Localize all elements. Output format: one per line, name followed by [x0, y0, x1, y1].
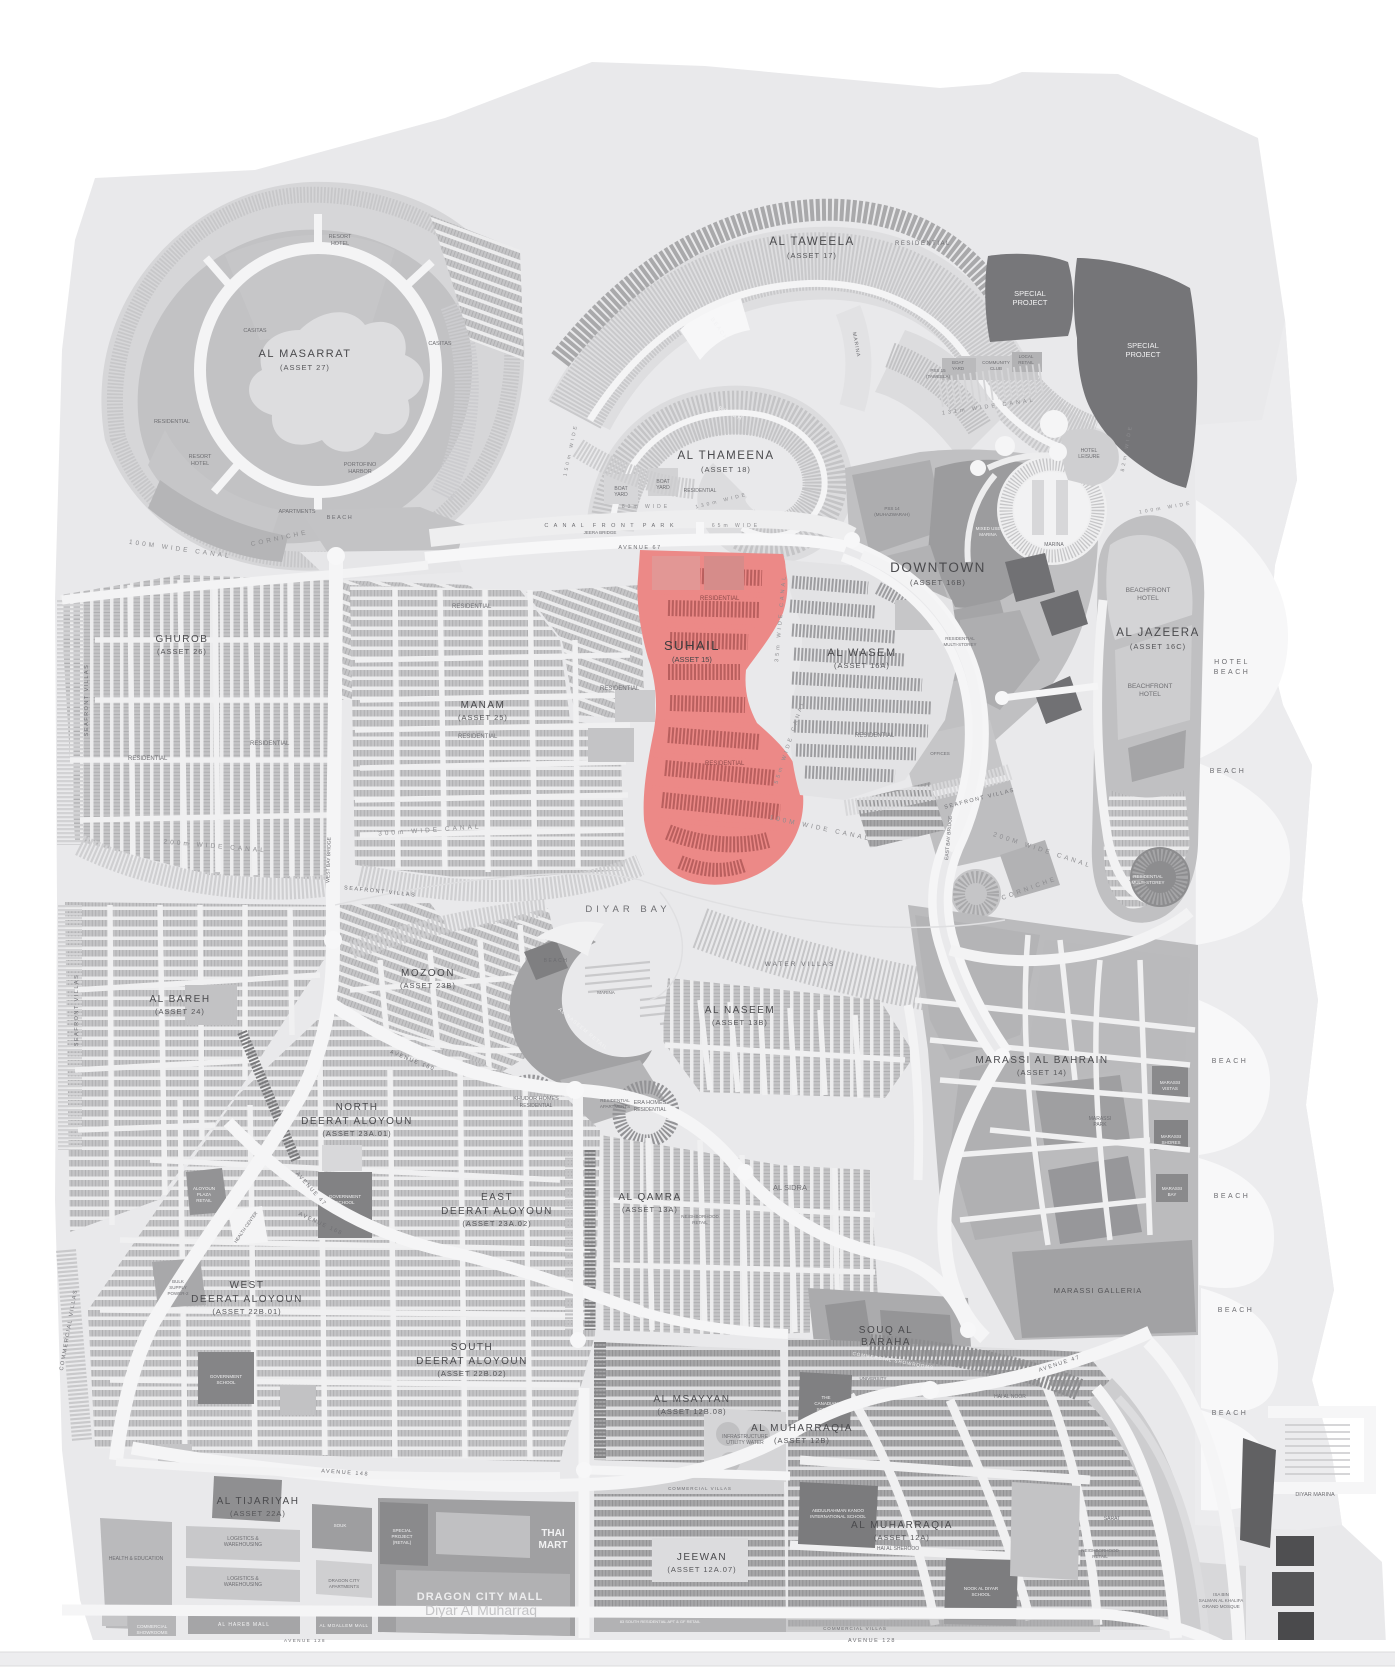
svg-text:GHUROB: GHUROB — [156, 634, 209, 645]
svg-text:PARK: PARK — [1093, 1122, 1107, 1128]
svg-text:(TAWEELA): (TAWEELA) — [926, 374, 951, 379]
svg-text:(ASSET 22A): (ASSET 22A) — [230, 1509, 286, 1518]
svg-text:RESORT: RESORT — [329, 234, 352, 240]
svg-text:AL MUHARRAQIA: AL MUHARRAQIA — [751, 1423, 853, 1434]
svg-text:(ASSET 22B.02): (ASSET 22B.02) — [437, 1369, 506, 1378]
svg-text:BOAT: BOAT — [952, 360, 964, 365]
svg-text:(ASSET 17): (ASSET 17) — [787, 251, 837, 260]
svg-text:SPECIAL: SPECIAL — [1127, 341, 1159, 350]
svg-text:YARD: YARD — [656, 485, 670, 491]
svg-text:MARASSI: MARASSI — [1160, 1080, 1180, 1085]
svg-text:RESIDENTIAL: RESIDENTIAL — [520, 1103, 553, 1109]
svg-text:RESIDENTIAL: RESIDENTIAL — [452, 604, 492, 610]
svg-text:YARD: YARD — [952, 366, 965, 371]
svg-text:(ASSET 27): (ASSET 27) — [280, 363, 330, 372]
svg-text:(ASSET 12A.07): (ASSET 12A.07) — [667, 1565, 736, 1574]
svg-text:COMMUNITY: COMMUNITY — [982, 360, 1010, 365]
svg-text:HEALTH & EDUCATION: HEALTH & EDUCATION — [109, 1556, 164, 1562]
svg-text:MARASSI: MARASSI — [1161, 1134, 1181, 1139]
svg-text:83m WIDE: 83m WIDE — [622, 504, 670, 510]
svg-text:PROJECT: PROJECT — [1125, 350, 1160, 359]
svg-text:NEIGHBORHOOD: NEIGHBORHOOD — [681, 1214, 719, 1219]
svg-text:RESORT: RESORT — [189, 454, 212, 460]
svg-text:ALOYOUN: ALOYOUN — [193, 1186, 215, 1191]
svg-text:RESIDENTIAL: RESIDENTIAL — [458, 734, 498, 740]
svg-text:WAREHOUSING: WAREHOUSING — [224, 1582, 262, 1588]
svg-text:SHOWROOMS: SHOWROOMS — [137, 1630, 168, 1635]
svg-text:AL MUHARRAQIA: AL MUHARRAQIA — [851, 1520, 953, 1531]
svg-text:COMMERCIAL: COMMERCIAL — [137, 1624, 168, 1629]
svg-text:THAI: THAI — [541, 1528, 565, 1539]
svg-text:MULTI-STOREY: MULTI-STOREY — [1131, 880, 1164, 885]
svg-text:MARINA: MARINA — [1044, 542, 1064, 548]
svg-text:BEACHFRONT: BEACHFRONT — [1126, 587, 1171, 594]
svg-text:NOOK AL DIYAR: NOOK AL DIYAR — [964, 1586, 999, 1591]
svg-text:WAREHOUSING: WAREHOUSING — [224, 1542, 262, 1548]
svg-text:BEACH: BEACH — [1210, 768, 1247, 775]
svg-text:DEERAT ALOYOUN: DEERAT ALOYOUN — [416, 1356, 528, 1367]
svg-text:RESIDENTIAL: RESIDENTIAL — [250, 741, 290, 747]
svg-text:BAY: BAY — [1168, 1192, 1177, 1197]
svg-text:DIYAR BAY: DIYAR BAY — [585, 904, 670, 915]
svg-text:MANAM: MANAM — [461, 700, 506, 711]
svg-text:AVENUE 128: AVENUE 128 — [284, 1638, 326, 1643]
svg-text:CANADIAN: CANADIAN — [814, 1401, 837, 1406]
svg-text:AL THAMEENA: AL THAMEENA — [677, 450, 774, 462]
svg-text:(ASSET 12B): (ASSET 12B) — [774, 1436, 830, 1445]
svg-text:(MUHAZWARAH): (MUHAZWARAH) — [874, 512, 910, 517]
svg-text:BEACH: BEACH — [1214, 1193, 1251, 1200]
svg-text:SEAFRONT VILLAS: SEAFRONT VILLAS — [74, 974, 80, 1047]
svg-text:VISTAS: VISTAS — [1162, 1086, 1178, 1091]
svg-text:HOTEL: HOTEL — [1139, 691, 1161, 698]
svg-text:DEERAT ALOYOUN: DEERAT ALOYOUN — [441, 1206, 553, 1217]
svg-text:83 SOUTH RESIDENTIAL APT & GF: 83 SOUTH RESIDENTIAL APT & GF RETAIL — [620, 1619, 701, 1624]
svg-text:AL SIDRA: AL SIDRA — [773, 1183, 807, 1192]
svg-text:RETAIL: RETAIL — [1018, 360, 1034, 365]
svg-text:PORTOFINO: PORTOFINO — [344, 462, 377, 468]
svg-text:RESIDENTIAL: RESIDENTIAL — [600, 1098, 630, 1103]
svg-text:(ASSET 16A): (ASSET 16A) — [834, 661, 890, 670]
svg-text:APARTMENTS: APARTMENTS — [278, 509, 315, 515]
svg-text:DEERAT ALOYOUN: DEERAT ALOYOUN — [191, 1294, 303, 1305]
svg-text:BEACHFRONT: BEACHFRONT — [1128, 683, 1173, 690]
svg-text:MULTI-STOREY: MULTI-STOREY — [943, 642, 976, 647]
svg-text:BEACH: BEACH — [327, 515, 353, 521]
svg-text:COMMERCIAL VILLAS: COMMERCIAL VILLAS — [668, 1486, 732, 1491]
svg-text:RESIDENTIAL: RESIDENTIAL — [945, 636, 975, 641]
svg-text:LOCAL: LOCAL — [1019, 354, 1034, 359]
svg-text:MARINA: MARINA — [979, 532, 997, 537]
svg-text:BARAHA: BARAHA — [861, 1337, 911, 1348]
svg-text:(ASSET 23B): (ASSET 23B) — [400, 981, 456, 990]
svg-text:RESIDENTIAL: RESIDENTIAL — [700, 596, 740, 602]
svg-text:RESIDENTIAL: RESIDENTIAL — [895, 241, 951, 247]
svg-text:PROJECT: PROJECT — [391, 1534, 412, 1539]
svg-text:CLUB: CLUB — [990, 366, 1002, 371]
svg-text:KHUDOR HOMES: KHUDOR HOMES — [513, 1096, 559, 1102]
svg-text:AL NASEEM: AL NASEEM — [705, 1005, 775, 1016]
svg-text:(ASSET 15): (ASSET 15) — [672, 655, 712, 664]
svg-text:RETAIL: RETAIL — [196, 1198, 212, 1203]
svg-text:DIYAR MARINA: DIYAR MARINA — [1295, 1492, 1335, 1498]
svg-text:CASITAS: CASITAS — [243, 328, 266, 334]
svg-text:DEERAT ALOYOUN: DEERAT ALOYOUN — [301, 1116, 413, 1127]
svg-text:MART: MART — [539, 1540, 568, 1551]
svg-text:MOZOON: MOZOON — [401, 968, 455, 979]
svg-text:SCHOOL: SCHOOL — [216, 1380, 236, 1385]
svg-text:APARTMENTS: APARTMENTS — [600, 1104, 630, 1109]
svg-text:AVENUE 128: AVENUE 128 — [848, 1638, 896, 1644]
svg-text:MIXED USE: MIXED USE — [976, 526, 1001, 531]
svg-text:GOVERNMENT: GOVERNMENT — [329, 1194, 362, 1199]
svg-text:BEACH: BEACH — [544, 958, 569, 964]
svg-text:YARD: YARD — [614, 492, 628, 498]
svg-text:DRAGON CITY: DRAGON CITY — [328, 1578, 359, 1583]
svg-text:(ASSET 24): (ASSET 24) — [155, 1007, 205, 1016]
svg-text:PSS 15: PSS 15 — [930, 368, 946, 373]
svg-text:SCHOOL: SCHOOL — [335, 1200, 355, 1205]
svg-text:(ASSET 16C): (ASSET 16C) — [1130, 642, 1186, 651]
svg-text:HOTEL: HOTEL — [331, 241, 349, 247]
svg-text:PSS 14: PSS 14 — [884, 506, 900, 511]
svg-text:MARASSI AL BAHRAIN: MARASSI AL BAHRAIN — [975, 1055, 1108, 1066]
svg-text:HOTEL: HOTEL — [1214, 659, 1250, 666]
svg-text:JEERA BRIDGE: JEERA BRIDGE — [584, 530, 617, 535]
svg-text:SUHAIL: SUHAIL — [664, 638, 720, 653]
svg-text:LEISURE: LEISURE — [1078, 454, 1100, 460]
svg-text:RETAIL: RETAIL — [1092, 1554, 1108, 1559]
svg-text:SOUK: SOUK — [334, 1523, 347, 1528]
svg-text:COMMERCIAL VILLAS: COMMERCIAL VILLAS — [823, 1626, 887, 1631]
svg-text:UNIVERSITY: UNIVERSITY — [859, 1376, 886, 1381]
svg-text:SHORES: SHORES — [1161, 1140, 1180, 1145]
svg-text:HOTEL: HOTEL — [1137, 595, 1159, 602]
svg-text:AL TAWEELA: AL TAWEELA — [769, 236, 854, 248]
svg-text:(ASSET 23A.01): (ASSET 23A.01) — [322, 1129, 391, 1138]
svg-text:(ASSET 23A.02): (ASSET 23A.02) — [462, 1219, 531, 1228]
svg-text:(ASSET 18): (ASSET 18) — [701, 465, 751, 474]
svg-text:NORTH: NORTH — [336, 1102, 379, 1113]
svg-text:GRAND MOSQUE: GRAND MOSQUE — [1202, 1604, 1240, 1609]
svg-text:RESIDENTIAL: RESIDENTIAL — [634, 1107, 667, 1113]
svg-text:MARASSI: MARASSI — [1162, 1186, 1182, 1191]
svg-text:Diyar Al Muharraq: Diyar Al Muharraq — [425, 1602, 537, 1618]
svg-text:(ASSET 14): (ASSET 14) — [1017, 1068, 1067, 1077]
svg-text:SOUQ AL: SOUQ AL — [859, 1325, 913, 1336]
svg-text:(ASSET 22B.01): (ASSET 22B.01) — [212, 1307, 281, 1316]
svg-text:RESIDENTIAL: RESIDENTIAL — [1133, 874, 1163, 879]
svg-text:APARTMENTS: APARTMENTS — [329, 1584, 359, 1589]
svg-text:MARINA: MARINA — [597, 990, 615, 995]
svg-text:MARASSI GALLERIA: MARASSI GALLERIA — [1054, 1286, 1143, 1295]
svg-text:(ASSET 26): (ASSET 26) — [157, 647, 207, 656]
svg-text:(ASSET 13A): (ASSET 13A) — [622, 1205, 678, 1214]
svg-text:SCHOOL: SCHOOL — [816, 1407, 836, 1412]
svg-text:BEACH: BEACH — [1214, 669, 1251, 676]
svg-text:BULK: BULK — [172, 1279, 184, 1284]
svg-text:HOTEL: HOTEL — [191, 461, 209, 467]
svg-text:SOUTH: SOUTH — [451, 1342, 494, 1353]
svg-text:RETAIL: RETAIL — [692, 1220, 708, 1225]
svg-text:AL QAMRA: AL QAMRA — [618, 1192, 681, 1203]
svg-text:SPECIAL: SPECIAL — [1014, 289, 1046, 298]
svg-text:AL MOALLEM MALL: AL MOALLEM MALL — [319, 1623, 368, 1628]
svg-text:(ASSET 16B): (ASSET 16B) — [910, 578, 966, 587]
svg-text:(RETAIL): (RETAIL) — [393, 1540, 412, 1545]
svg-text:SUPPLY: SUPPLY — [169, 1285, 186, 1290]
svg-text:SEAFRONT VILLAS: SEAFRONT VILLAS — [84, 664, 90, 737]
svg-text:HAI AL SHEROOO: HAI AL SHEROOO — [877, 1546, 919, 1552]
svg-text:AVENUE 67: AVENUE 67 — [618, 545, 661, 551]
svg-text:GOVERNMENT: GOVERNMENT — [210, 1374, 243, 1379]
svg-text:C A N A L F R O N T P A R K: C A N A L F R O N T P A R K — [544, 523, 675, 529]
svg-text:RESIDENTIAL: RESIDENTIAL — [855, 733, 895, 739]
svg-text:OFFICES: OFFICES — [930, 751, 950, 756]
svg-text:65m WIDE: 65m WIDE — [712, 523, 760, 529]
svg-text:RESIDENTIAL: RESIDENTIAL — [705, 761, 745, 767]
svg-text:AL MSAYYAN: AL MSAYYAN — [653, 1394, 730, 1405]
svg-text:JEEWAN: JEEWAN — [677, 1552, 727, 1563]
svg-text:ABDULRAHMAN KANOO: ABDULRAHMAN KANOO — [812, 1508, 865, 1513]
svg-text:(ASSET 25): (ASSET 25) — [458, 713, 508, 722]
svg-text:EAST: EAST — [481, 1192, 513, 1203]
svg-text:AL JAZEERA: AL JAZEERA — [1116, 627, 1200, 639]
svg-text:HARBOR: HARBOR — [348, 469, 372, 475]
svg-text:AL BAREH: AL BAREH — [149, 994, 210, 1005]
svg-text:SCHOOL: SCHOOL — [971, 1592, 991, 1597]
svg-text:DOWNTOWN: DOWNTOWN — [890, 560, 986, 575]
svg-text:(ASSET 13B): (ASSET 13B) — [712, 1018, 768, 1027]
svg-text:ISA BIN: ISA BIN — [1213, 1592, 1229, 1597]
svg-text:CASITAS: CASITAS — [428, 341, 451, 347]
svg-text:RESIDENTIAL: RESIDENTIAL — [128, 756, 168, 762]
svg-text:BEACH: BEACH — [1218, 1307, 1255, 1314]
svg-text:AL TIJARIYAH: AL TIJARIYAH — [217, 1496, 300, 1507]
svg-text:BEACH: BEACH — [1212, 1410, 1249, 1417]
svg-text:SARAT: SARAT — [1104, 1516, 1120, 1522]
svg-text:WATER VILLAS: WATER VILLAS — [765, 961, 836, 968]
svg-text:HAI AL NOOR: HAI AL NOOR — [994, 1394, 1026, 1400]
svg-text:UTILITY WATER: UTILITY WATER — [726, 1440, 764, 1446]
svg-text:ERA HOMES: ERA HOMES — [634, 1100, 667, 1106]
svg-text:AL HAREB MALL: AL HAREB MALL — [218, 1622, 270, 1628]
svg-text:SALMAN AL KHALIFA: SALMAN AL KHALIFA — [1199, 1598, 1244, 1603]
svg-text:PLAZA: PLAZA — [197, 1192, 211, 1197]
svg-text:INTERNATIONAL SCHOOL: INTERNATIONAL SCHOOL — [810, 1514, 866, 1519]
svg-text:NEIGHBORHOOD: NEIGHBORHOOD — [1081, 1548, 1119, 1553]
svg-text:WEST: WEST — [230, 1280, 265, 1291]
svg-text:(ASSET 12B.08): (ASSET 12B.08) — [657, 1407, 726, 1416]
svg-text:POWER-2: POWER-2 — [167, 1291, 188, 1296]
svg-text:AL MASARRAT: AL MASARRAT — [259, 348, 352, 360]
svg-text:RESIDENTIAL: RESIDENTIAL — [600, 686, 640, 692]
svg-text:THE: THE — [822, 1395, 831, 1400]
svg-text:(ASSET 12A): (ASSET 12A) — [874, 1533, 930, 1542]
svg-text:SPECIAL: SPECIAL — [392, 1528, 412, 1533]
svg-text:RESIDENTIAL: RESIDENTIAL — [154, 419, 190, 425]
svg-text:RESIDENTIAL: RESIDENTIAL — [684, 488, 717, 494]
svg-text:AL WASEM: AL WASEM — [827, 647, 896, 659]
svg-text:BEACH: BEACH — [1212, 1058, 1249, 1065]
svg-text:PROJECT: PROJECT — [1012, 298, 1047, 307]
